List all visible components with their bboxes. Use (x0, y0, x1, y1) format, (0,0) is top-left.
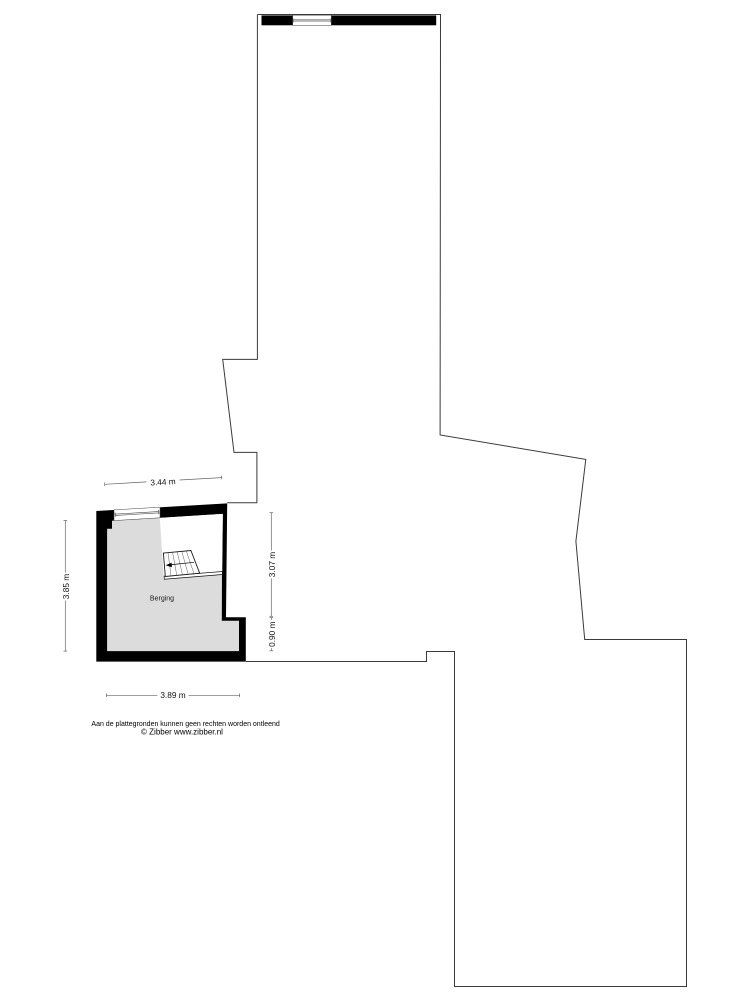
svg-text:© Zibber www.zibber.nl: © Zibber www.zibber.nl (141, 728, 223, 737)
svg-text:3.07 m: 3.07 m (267, 552, 277, 577)
svg-text:3.85 m: 3.85 m (61, 574, 71, 599)
svg-text:3.89 m: 3.89 m (160, 690, 185, 700)
svg-text:0.90 m: 0.90 m (267, 621, 277, 646)
svg-text:3.44 m: 3.44 m (150, 476, 176, 487)
svg-text:Berging: Berging (150, 595, 174, 602)
